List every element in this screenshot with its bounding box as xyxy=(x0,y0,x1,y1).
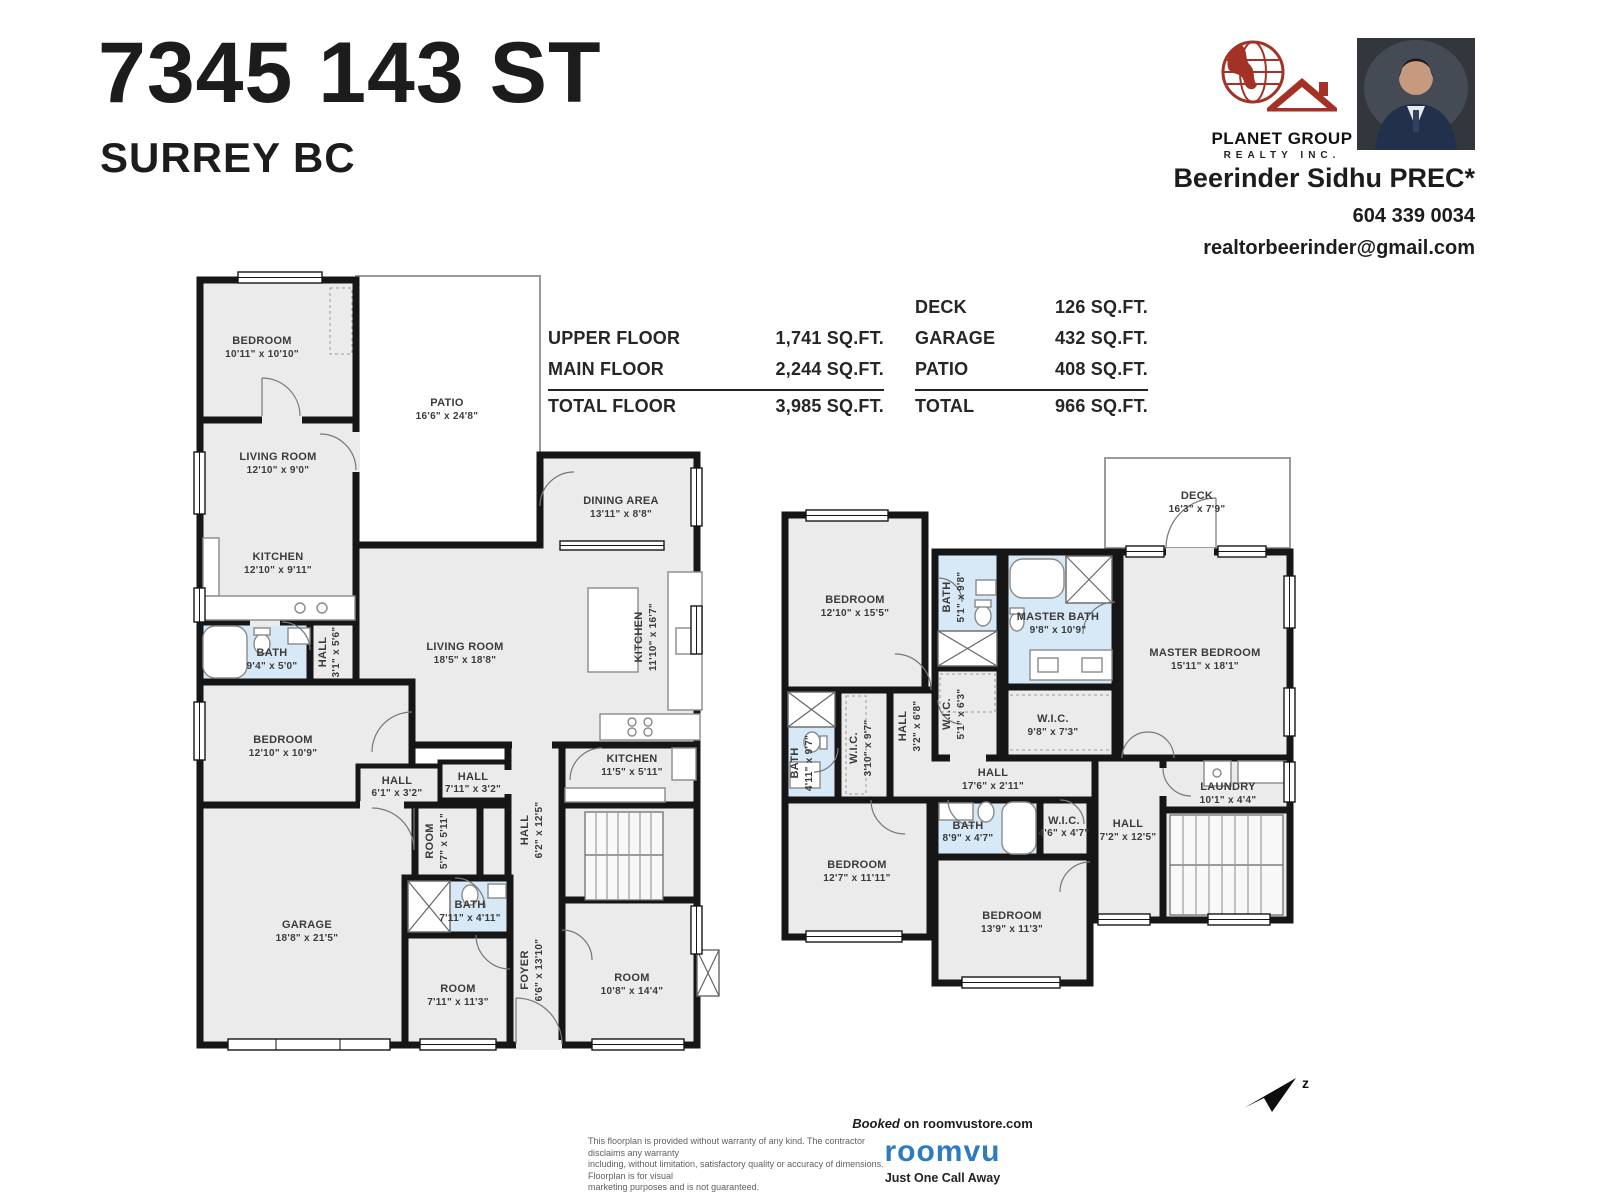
svg-text:11'10" x 16'7": 11'10" x 16'7" xyxy=(648,603,659,671)
svg-text:BATH: BATH xyxy=(455,899,486,911)
svg-text:9'4" x 5'0": 9'4" x 5'0" xyxy=(247,661,298,672)
agent-contact: Beerinder Sidhu PREC* 604 339 0034 realt… xyxy=(1173,163,1475,260)
area-label: TOTAL xyxy=(915,396,974,417)
north-arrow-icon: z xyxy=(1238,1066,1322,1122)
svg-text:W.I.C.: W.I.C. xyxy=(941,698,953,730)
area-value: 1,741 SQ.FT. xyxy=(776,328,884,349)
svg-text:16'6" x 24'8": 16'6" x 24'8" xyxy=(416,411,479,422)
svg-text:LIVING ROOM: LIVING ROOM xyxy=(426,641,503,653)
area-value: 2,244 SQ.FT. xyxy=(776,359,884,380)
svg-text:3'1" x 5'6": 3'1" x 5'6" xyxy=(331,627,342,678)
svg-text:LIVING ROOM: LIVING ROOM xyxy=(239,451,316,463)
booked-word: Booked xyxy=(852,1116,900,1131)
area-label: DECK xyxy=(915,297,967,318)
floorplan-sheet: 7345 143 ST SURREY BC PLANET GROUP REALT… xyxy=(0,0,1600,1200)
svg-text:18'5" x 18'8": 18'5" x 18'8" xyxy=(434,655,497,666)
area-value: 126 SQ.FT. xyxy=(1055,297,1148,318)
svg-text:6'2" x 12'5": 6'2" x 12'5" xyxy=(534,802,545,859)
svg-text:ROOM: ROOM xyxy=(614,972,649,984)
svg-text:BEDROOM: BEDROOM xyxy=(253,734,313,746)
svg-text:17'6" x 2'11": 17'6" x 2'11" xyxy=(962,781,1024,792)
svg-text:BATH: BATH xyxy=(941,582,953,613)
svg-text:BEDROOM: BEDROOM xyxy=(232,335,292,347)
svg-text:BATH: BATH xyxy=(257,647,288,659)
svg-text:11'5" x 5'11": 11'5" x 5'11" xyxy=(601,767,663,778)
agent-email: realtorbeerinder@gmail.com xyxy=(1173,237,1475,260)
svg-text:7'2" x 12'5": 7'2" x 12'5" xyxy=(1100,832,1157,843)
svg-text:9'8" x 7'3": 9'8" x 7'3" xyxy=(1028,727,1079,738)
svg-text:10'8" x 14'4": 10'8" x 14'4" xyxy=(601,986,664,997)
svg-text:4'6" x 4'7": 4'6" x 4'7" xyxy=(1039,828,1090,839)
svg-text:10'11" x 10'10": 10'11" x 10'10" xyxy=(225,349,299,360)
brokerage-type: REALTY INC. xyxy=(1203,150,1361,161)
svg-text:3'2" x 6'8": 3'2" x 6'8" xyxy=(912,701,923,752)
table-row: PATIO 408 SQ.FT. xyxy=(915,359,1148,380)
svg-text:HALL: HALL xyxy=(978,767,1009,779)
brokerage-name: PLANET GROUP xyxy=(1203,129,1361,149)
svg-text:10'1" x 4'4": 10'1" x 4'4" xyxy=(1200,795,1257,806)
svg-text:15'11" x 18'1": 15'11" x 18'1" xyxy=(1171,661,1239,672)
svg-text:7'11" x 3'2": 7'11" x 3'2" xyxy=(445,784,501,795)
area-value: 3,985 SQ.FT. xyxy=(776,396,884,417)
disclaimer-line: including, without limitation, satisfact… xyxy=(588,1159,888,1182)
svg-text:HALL: HALL xyxy=(1113,818,1144,830)
svg-text:6'1" x 3'2": 6'1" x 3'2" xyxy=(372,788,423,799)
roomvu-branding: Booked on roomvustore.com roomvu Just On… xyxy=(845,1116,1040,1185)
svg-text:W.I.C.: W.I.C. xyxy=(848,732,860,764)
booked-rest: on roomvustore.com xyxy=(900,1116,1033,1131)
disclaimer-line: marketing purposes and is not guaranteed… xyxy=(588,1182,888,1194)
svg-text:13'11" x 8'8": 13'11" x 8'8" xyxy=(590,509,652,520)
disclaimer-line: This floorplan is provided without warra… xyxy=(588,1136,888,1159)
table-divider xyxy=(915,389,1148,391)
page-subtitle: SURREY BC xyxy=(100,134,356,182)
table-row: DECK 126 SQ.FT. xyxy=(915,297,1148,318)
svg-text:8'9" x 4'7": 8'9" x 4'7" xyxy=(943,833,994,844)
svg-text:5'7" x 5'11": 5'7" x 5'11" xyxy=(439,813,450,869)
svg-text:GARAGE: GARAGE xyxy=(282,919,332,931)
svg-text:W.I.C.: W.I.C. xyxy=(1048,815,1080,827)
area-value: 966 SQ.FT. xyxy=(1055,396,1148,417)
svg-text:KITCHEN: KITCHEN xyxy=(633,612,645,663)
svg-text:BEDROOM: BEDROOM xyxy=(982,910,1042,922)
svg-text:MASTER BATH: MASTER BATH xyxy=(1017,611,1100,623)
svg-text:HALL: HALL xyxy=(458,771,489,783)
svg-text:6'6" x 13'10": 6'6" x 13'10" xyxy=(534,939,545,1002)
svg-text:FOYER: FOYER xyxy=(519,950,531,989)
svg-text:HALL: HALL xyxy=(382,775,413,787)
svg-text:KITCHEN: KITCHEN xyxy=(253,551,304,563)
svg-text:13'9" x 11'3": 13'9" x 11'3" xyxy=(981,924,1043,935)
page-title: 7345 143 ST xyxy=(98,30,601,116)
svg-text:BATH: BATH xyxy=(789,748,801,779)
table-row: TOTAL 966 SQ.FT. xyxy=(915,396,1148,417)
brokerage-logo: PLANET GROUP REALTY INC. xyxy=(1203,30,1361,161)
table-row: GARAGE 432 SQ.FT. xyxy=(915,328,1148,349)
disclaimer-text: This floorplan is provided without warra… xyxy=(588,1136,888,1194)
area-label: PATIO xyxy=(915,359,968,380)
svg-text:PATIO: PATIO xyxy=(430,397,464,409)
agent-name: Beerinder Sidhu PREC* xyxy=(1173,163,1475,194)
svg-text:DINING AREA: DINING AREA xyxy=(583,495,659,507)
svg-text:12'10" x 15'5": 12'10" x 15'5" xyxy=(821,608,890,619)
planet-group-logo-icon xyxy=(1207,30,1357,122)
svg-text:HALL: HALL xyxy=(519,815,531,846)
north-letter: z xyxy=(1302,1075,1309,1091)
svg-text:MASTER BEDROOM: MASTER BEDROOM xyxy=(1149,647,1260,659)
upper-floor-plan: DECK 16'3" x 7'9" BEDROOM 12'10" x 15'5"… xyxy=(770,445,1300,995)
svg-text:12'10" x 10'9": 12'10" x 10'9" xyxy=(249,748,318,759)
svg-text:7'11" x 11'3": 7'11" x 11'3" xyxy=(427,997,489,1008)
svg-text:ROOM: ROOM xyxy=(424,823,436,858)
svg-text:BEDROOM: BEDROOM xyxy=(825,594,885,606)
booked-on-line: Booked on roomvustore.com xyxy=(845,1116,1040,1131)
svg-text:HALL: HALL xyxy=(317,637,329,668)
svg-text:12'10" x 9'11": 12'10" x 9'11" xyxy=(244,565,312,576)
svg-text:HALL: HALL xyxy=(897,711,909,742)
area-value: 432 SQ.FT. xyxy=(1055,328,1148,349)
svg-text:KITCHEN: KITCHEN xyxy=(607,753,658,765)
area-value: 408 SQ.FT. xyxy=(1055,359,1148,380)
roomvu-tagline: Just One Call Away xyxy=(845,1171,1040,1185)
svg-text:5'1" x 9'8": 5'1" x 9'8" xyxy=(956,572,967,623)
main-floor-plan: BEDROOM 10'11" x 10'10" PATIO 16'6" x 24… xyxy=(185,258,755,1058)
svg-text:W.I.C.: W.I.C. xyxy=(1037,713,1069,725)
svg-text:ROOM: ROOM xyxy=(440,983,475,995)
svg-text:12'10" x 9'0": 12'10" x 9'0" xyxy=(247,465,310,476)
svg-text:12'7" x 11'11": 12'7" x 11'11" xyxy=(823,873,890,884)
area-label: GARAGE xyxy=(915,328,995,349)
svg-text:9'8" x 10'9": 9'8" x 10'9" xyxy=(1030,625,1087,636)
svg-text:7'11" x 4'11": 7'11" x 4'11" xyxy=(439,913,501,924)
svg-text:BATH: BATH xyxy=(953,820,984,832)
roomvu-logo: roomvu xyxy=(845,1135,1040,1169)
agent-phone: 604 339 0034 xyxy=(1173,205,1475,228)
svg-text:16'3" x 7'9": 16'3" x 7'9" xyxy=(1169,504,1226,515)
svg-text:DECK: DECK xyxy=(1181,490,1213,502)
svg-text:5'1" x 6'3": 5'1" x 6'3" xyxy=(956,689,967,740)
svg-text:LAUNDRY: LAUNDRY xyxy=(1200,781,1256,793)
svg-text:3'10" x 9'7": 3'10" x 9'7" xyxy=(863,720,874,777)
agent-photo xyxy=(1357,38,1475,150)
svg-text:18'8" x 21'5": 18'8" x 21'5" xyxy=(276,933,339,944)
svg-text:BEDROOM: BEDROOM xyxy=(827,859,887,871)
svg-text:4'11" x 9'7": 4'11" x 9'7" xyxy=(804,735,815,791)
